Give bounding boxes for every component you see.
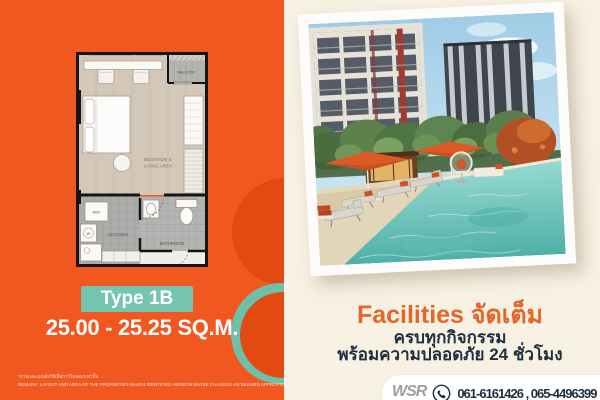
- contact-bar: WSR 061-6161426 , 065-4496399: [382, 375, 600, 400]
- photo-scene: [308, 12, 566, 266]
- disclaimer: *ภาพและแผนผังใช้เพื่อการโฆษณาเท่านั้น RE…: [18, 373, 276, 389]
- wsr-logo: WSR: [392, 384, 426, 400]
- round-table: [114, 155, 131, 172]
- bedroom-label-2: LIVING AREA: [144, 164, 172, 169]
- type-badge: Type 1B: [81, 286, 193, 312]
- type-badge-label: Type 1B: [101, 288, 174, 310]
- photo-frame: [298, 2, 576, 277]
- bedroom-label-1: BEDROOM &: [144, 157, 171, 162]
- decor-circle-top: [232, 178, 284, 286]
- disclaimer-english: REMARK: LAYOUT AND AREA OF THE PROPERTIE…: [18, 381, 276, 389]
- balcony-area: BALCONY: [168, 55, 205, 83]
- entry-floor: [140, 251, 205, 265]
- phone-icon: [432, 384, 451, 400]
- bathroom-label: BATHROOM: [160, 241, 184, 246]
- floor-plan: BALCONY: [76, 52, 208, 267]
- facilities-subline-2: พร้อมความปลอดภัย 24 ชั่วโมง: [300, 341, 600, 368]
- fridge-label: REF: [93, 210, 102, 215]
- phone-numbers: 061-6161426 , 065-4496399: [457, 386, 596, 400]
- balcony-label: BALCONY: [177, 71, 196, 75]
- washer-label: W: [87, 231, 91, 236]
- wardrobe: [184, 96, 203, 193]
- wsr-logo-text: WSR: [392, 384, 426, 400]
- area-size-text: 25.00 - 25.25 SQ.M.: [0, 315, 284, 341]
- disclaimer-thai: *ภาพและแผนผังใช้เพื่อการโฆษณาเท่านั้น: [18, 373, 276, 381]
- flyer-canvas: BALCONY: [0, 0, 600, 400]
- kitchen-label: KITCHEN: [108, 232, 127, 237]
- left-panel: BALCONY: [0, 0, 284, 400]
- bed: [83, 96, 130, 153]
